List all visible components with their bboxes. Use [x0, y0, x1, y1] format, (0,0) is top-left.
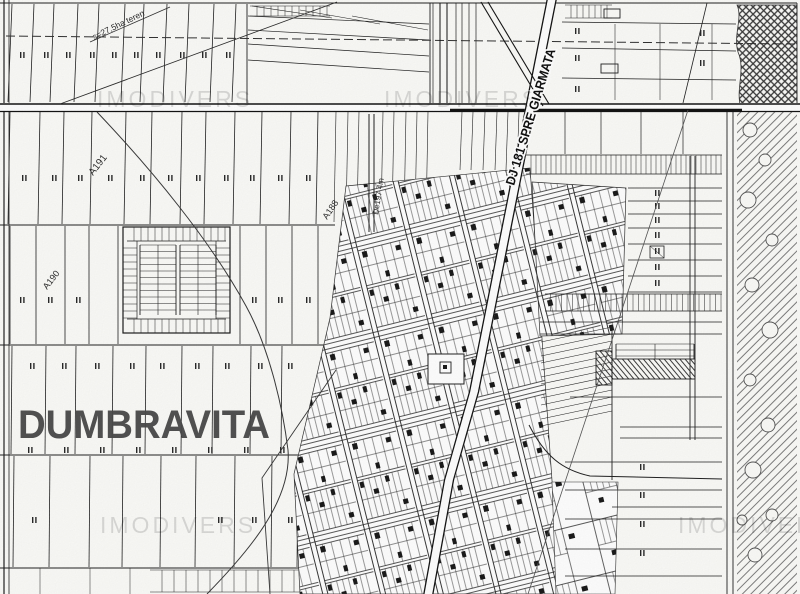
- cadastral-map: IMODIVERSIMODIVERSIMODIVERSIMODIVERS DUM…: [0, 0, 800, 594]
- scan-noise-overlay: [0, 0, 800, 594]
- map-screenshot: IMODIVERSIMODIVERSIMODIVERSIMODIVERS DUM…: [0, 0, 800, 594]
